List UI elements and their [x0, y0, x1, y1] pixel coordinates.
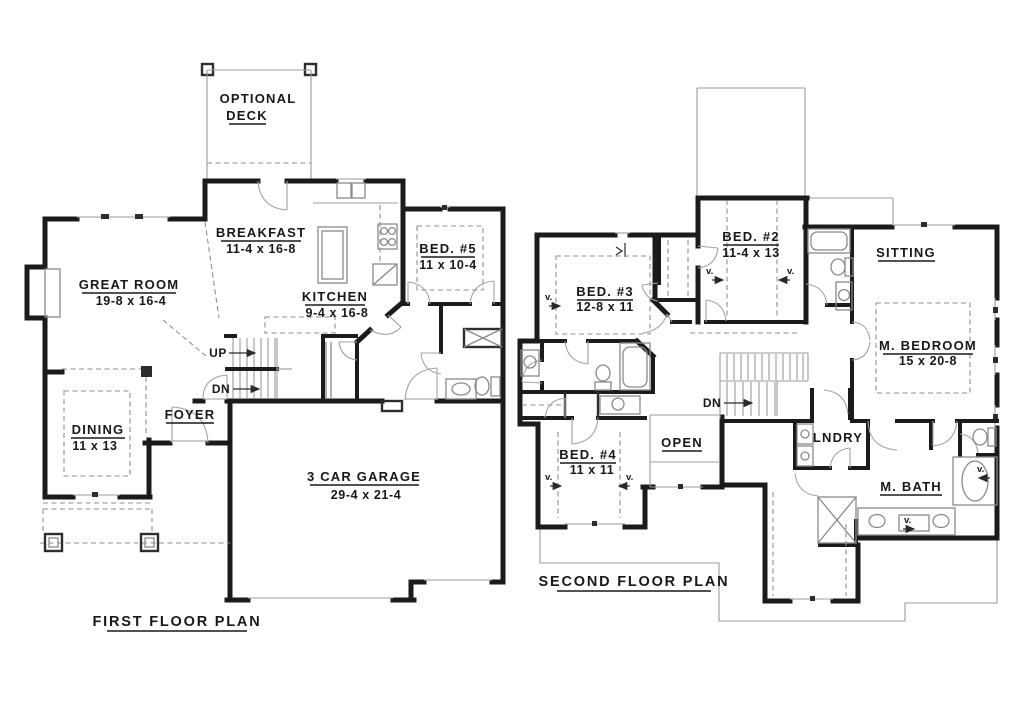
- room-label-great-room: GREAT ROOM: [79, 277, 180, 292]
- deck-label-line1: OPTIONAL: [220, 91, 297, 106]
- room-dims-garage: 29-4 x 21-4: [331, 488, 402, 502]
- vault-mark: v.: [706, 266, 713, 277]
- room-label-kitchen: KITCHEN: [302, 289, 368, 304]
- vault-mark: v.: [787, 266, 794, 277]
- stair-down-label: DN: [703, 396, 721, 410]
- porch-outline: [40, 503, 230, 551]
- second-floor-stairs: [720, 353, 808, 419]
- vault-mark: v.: [977, 464, 984, 475]
- bath-sink-icon: [446, 379, 476, 399]
- dryer-icon: [797, 446, 813, 466]
- room-dims-master-bedroom: 15 x 20-8: [899, 354, 957, 368]
- room-label-sitting: SITTING: [876, 245, 936, 260]
- toilet-icon: [831, 259, 845, 275]
- room-label-garage: 3 CAR GARAGE: [307, 469, 421, 484]
- fireplace-icon: [45, 269, 60, 317]
- sink-icon: [839, 290, 850, 301]
- room-dims-bed4: 11 x 11: [570, 463, 615, 477]
- room-label-bed3: BED. #3: [576, 284, 634, 299]
- open-below-edges: [650, 415, 720, 489]
- room-label-foyer: FOYER: [165, 407, 216, 422]
- sink-icon: [612, 398, 624, 410]
- room-label-bed2: BED. #2: [722, 229, 780, 244]
- room-label-dining: DINING: [72, 422, 125, 437]
- washer-icon: [797, 424, 813, 444]
- floor-plan-drawing: OPTIONAL DECK BREAKFAST 11-4 x 16-8 GREA…: [0, 0, 1024, 712]
- room-dims-bed3: 12-8 x 11: [576, 300, 634, 314]
- vault-mark: v.: [545, 472, 552, 483]
- room-label-bed5: BED. #5: [419, 241, 477, 256]
- vault-mark: v.: [904, 515, 911, 526]
- second-floor-title: SECOND FLOOR PLAN: [539, 574, 730, 590]
- room-dims-dining: 11 x 13: [72, 439, 117, 453]
- toilet-icon: [973, 429, 987, 445]
- room-label-laundry: LNDRY: [813, 430, 863, 445]
- kitchen-sink-icon: [337, 183, 351, 198]
- deck-label-line2: DECK: [226, 108, 268, 123]
- first-floor-plan: OPTIONAL DECK BREAKFAST 11-4 x 16-8 GREA…: [27, 64, 503, 631]
- first-floor-title: FIRST FLOOR PLAN: [93, 614, 262, 630]
- room-label-master-bath: M. BATH: [880, 479, 942, 494]
- toilet-icon: [491, 377, 500, 396]
- room-dims-bed2: 11-4 x 13: [722, 246, 780, 260]
- toilet-icon: [596, 365, 610, 381]
- second-floor-plan: v. v. v. v. v. v. v. BED. #2 11-4 x 13 S…: [520, 88, 998, 621]
- first-floor-labels: OPTIONAL DECK BREAKFAST 11-4 x 16-8 GREA…: [71, 91, 477, 631]
- room-label-open: OPEN: [661, 435, 703, 450]
- floor-plan-sheet: OPTIONAL DECK BREAKFAST 11-4 x 16-8 GREA…: [0, 0, 1024, 712]
- room-label-bed4: BED. #4: [559, 447, 617, 462]
- stair-up-label: UP: [209, 346, 227, 360]
- room-dims-great-room: 19-8 x 16-4: [96, 294, 167, 308]
- garden-tub-icon: [953, 457, 997, 505]
- stair-down-label: DN: [212, 382, 230, 396]
- vault-mark: v.: [626, 472, 633, 483]
- room-dims-bed5: 11 x 10-4: [419, 258, 477, 272]
- room-label-breakfast: BREAKFAST: [216, 225, 306, 240]
- room-dims-breakfast: 11-4 x 16-8: [226, 242, 296, 256]
- room-label-master-bedroom: M. BEDROOM: [879, 338, 977, 353]
- vault-mark: v.: [545, 292, 552, 303]
- room-dims-kitchen: 9-4 x 16-8: [306, 306, 369, 320]
- second-floor-windows: [565, 222, 998, 601]
